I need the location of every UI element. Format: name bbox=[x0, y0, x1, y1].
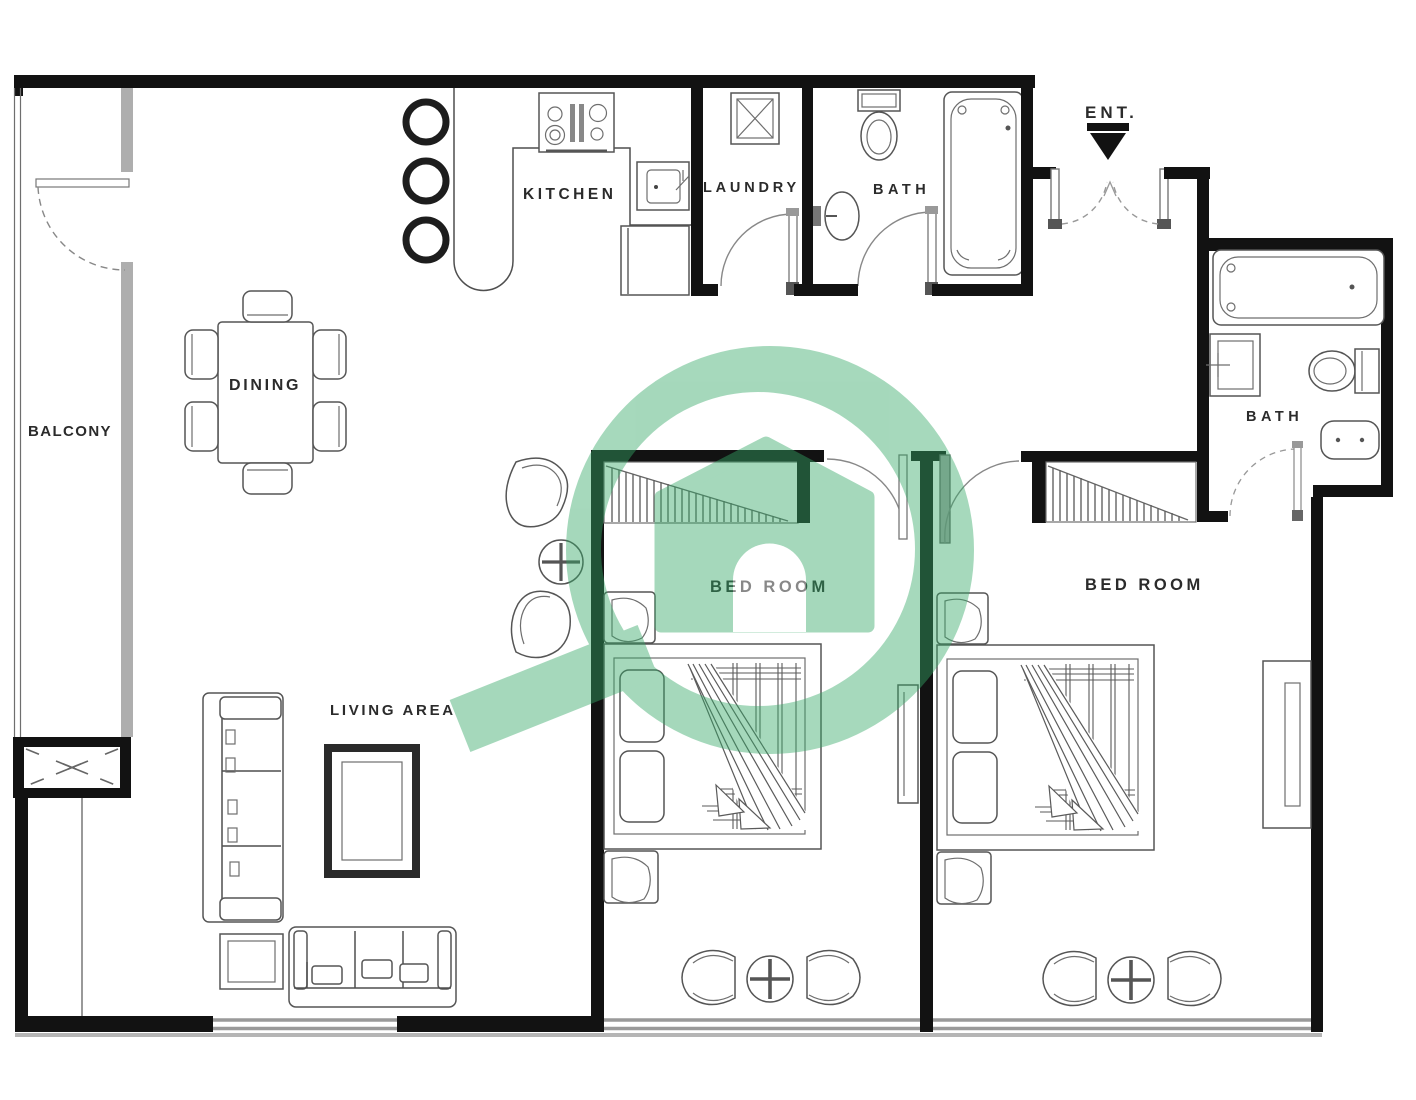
svg-text:LIVING AREA: LIVING AREA bbox=[330, 702, 456, 719]
svg-text:KITCHEN: KITCHEN bbox=[523, 186, 616, 203]
svg-text:BALCONY: BALCONY bbox=[28, 423, 112, 440]
svg-text:BATH: BATH bbox=[1246, 409, 1303, 425]
svg-text:BED ROOM: BED ROOM bbox=[1085, 576, 1204, 594]
svg-text:BATH: BATH bbox=[873, 182, 930, 198]
svg-text:DINING: DINING bbox=[229, 377, 301, 394]
svg-text:ENT.: ENT. bbox=[1085, 103, 1138, 122]
svg-text:LAUNDRY: LAUNDRY bbox=[703, 180, 800, 196]
